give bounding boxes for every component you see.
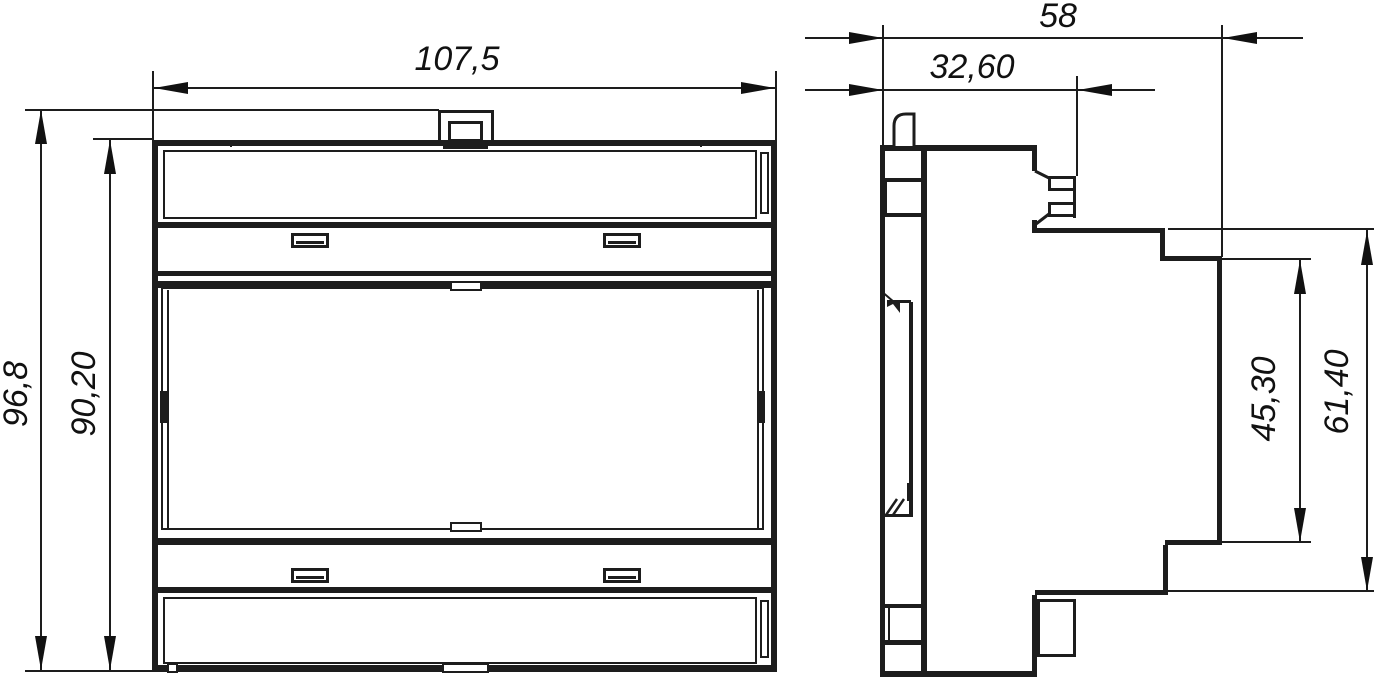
- extension-line: [93, 138, 153, 140]
- arrowhead: [1294, 260, 1306, 294]
- edge-line: [1035, 228, 1165, 233]
- upper-right-slot: [760, 152, 769, 214]
- panel-clip-mark: [757, 391, 765, 423]
- technical-drawing: 107,5 96,8 90,20: [0, 0, 1379, 681]
- edge-line: [152, 222, 777, 228]
- latch: [291, 568, 329, 583]
- release-tab: [894, 114, 914, 146]
- edge-line: [1032, 150, 1037, 171]
- edge-line: [152, 538, 777, 545]
- edge-line: [880, 671, 1037, 677]
- arrowhead: [1361, 231, 1373, 265]
- din-clip-top: [880, 178, 927, 182]
- rear-terminal: [1048, 176, 1076, 191]
- edge-tick: [700, 140, 702, 147]
- dimension-line: [1299, 259, 1301, 543]
- groove-hook-line: [893, 499, 904, 515]
- panel-notch-bottom: [450, 522, 482, 532]
- panel-clip-mark: [160, 391, 168, 423]
- bottom-terminal: [1037, 599, 1076, 657]
- dimension-line: [152, 87, 777, 89]
- din-groove-line: [884, 514, 911, 517]
- edge-line: [152, 587, 777, 593]
- edge-line: [1165, 256, 1222, 261]
- terminal-edge: [1073, 176, 1076, 218]
- dimension-line: [40, 109, 42, 672]
- extension-line: [25, 109, 439, 111]
- arrowhead: [35, 110, 47, 144]
- chamfer-line: [1035, 171, 1049, 178]
- bottom-foot: [167, 663, 178, 673]
- top-tab-slot: [443, 141, 488, 149]
- edge-line: [152, 271, 777, 276]
- lower-terminal-cover: [163, 597, 757, 664]
- arrowhead: [1223, 32, 1257, 44]
- edge-line: [880, 145, 1037, 151]
- din-clip-line: [883, 640, 927, 645]
- panel-notch-top: [450, 281, 482, 291]
- extension-line: [25, 670, 160, 672]
- lower-right-slot: [760, 600, 769, 658]
- extension-line: [1168, 590, 1374, 592]
- arrowhead: [849, 32, 883, 44]
- edge-line: [1165, 540, 1222, 545]
- dimension-line: [109, 139, 111, 671]
- latch: [291, 233, 329, 248]
- edge-line: [880, 145, 885, 676]
- din-clip-line: [885, 182, 887, 214]
- edge-tick: [230, 140, 232, 147]
- arrowhead: [741, 82, 775, 94]
- arrowhead: [849, 84, 883, 96]
- din-groove-mark: [907, 483, 913, 501]
- arrowhead: [1361, 557, 1373, 591]
- arrowhead: [35, 636, 47, 670]
- dim-label-front-height: 61,40: [1320, 349, 1354, 434]
- upper-terminal-cover: [163, 150, 757, 219]
- front-panel-frame: [161, 287, 764, 530]
- top-tab-inner: [448, 121, 483, 142]
- din-groove-line: [887, 300, 911, 303]
- rear-terminal: [1048, 202, 1076, 217]
- arrowhead: [1294, 508, 1306, 542]
- arrowhead: [104, 636, 116, 670]
- dim-label-rear-depth: 32,60: [929, 50, 1014, 84]
- arrowhead: [154, 82, 188, 94]
- latch: [603, 233, 641, 248]
- front-face-line: [1217, 260, 1222, 544]
- dim-label-panel-height: 45,30: [1247, 356, 1281, 441]
- dim-label-overall-height: 96,8: [0, 361, 33, 427]
- bottom-foot: [442, 663, 489, 673]
- arrowhead: [104, 140, 116, 174]
- din-clip-line: [888, 608, 890, 641]
- extension-line: [775, 71, 777, 140]
- extension-line: [1168, 228, 1374, 230]
- dim-label-width: 107,5: [414, 42, 499, 76]
- edge-line: [1035, 590, 1168, 595]
- dim-label-body-height: 90,20: [67, 351, 101, 436]
- extension-line: [1221, 25, 1223, 257]
- groove-hook-line: [886, 499, 897, 515]
- din-clip-line: [883, 213, 927, 217]
- edge-line: [1163, 545, 1168, 591]
- dim-label-depth: 58: [1039, 0, 1077, 33]
- arrowhead: [1078, 84, 1112, 96]
- edge-line: [921, 145, 927, 676]
- latch: [603, 568, 641, 583]
- dimension-line: [1366, 230, 1368, 592]
